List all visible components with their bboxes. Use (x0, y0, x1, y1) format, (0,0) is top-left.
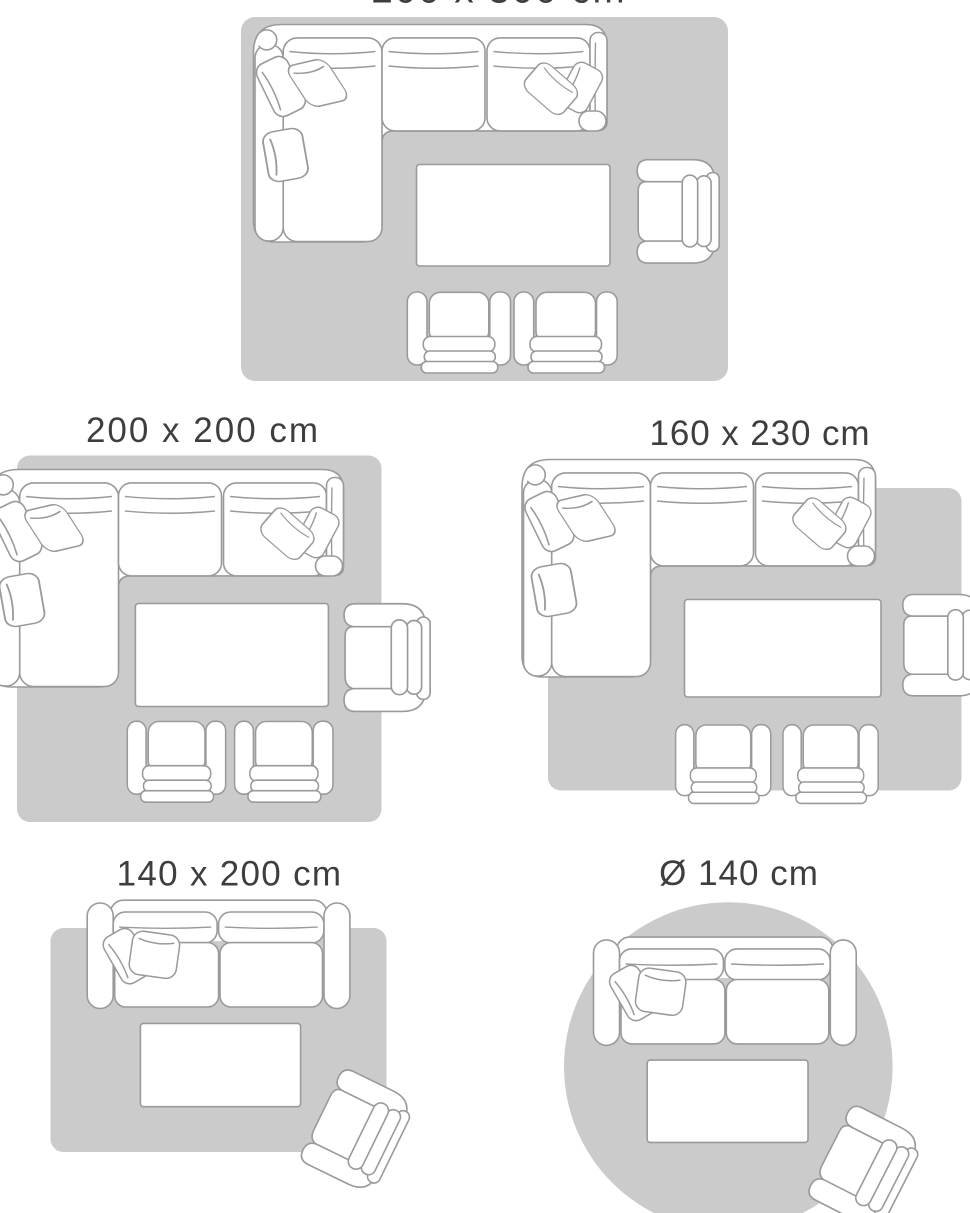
svg-text:200 x 300 cm: 200 x 300 cm (371, 0, 626, 12)
svg-text:Ø 140 cm: Ø 140 cm (659, 854, 819, 893)
svg-text:140 x 200 cm: 140 x 200 cm (117, 855, 343, 894)
svg-text:160 x 230 cm: 160 x 230 cm (650, 414, 871, 453)
svg-text:200 x 200 cm: 200 x 200 cm (86, 411, 320, 450)
